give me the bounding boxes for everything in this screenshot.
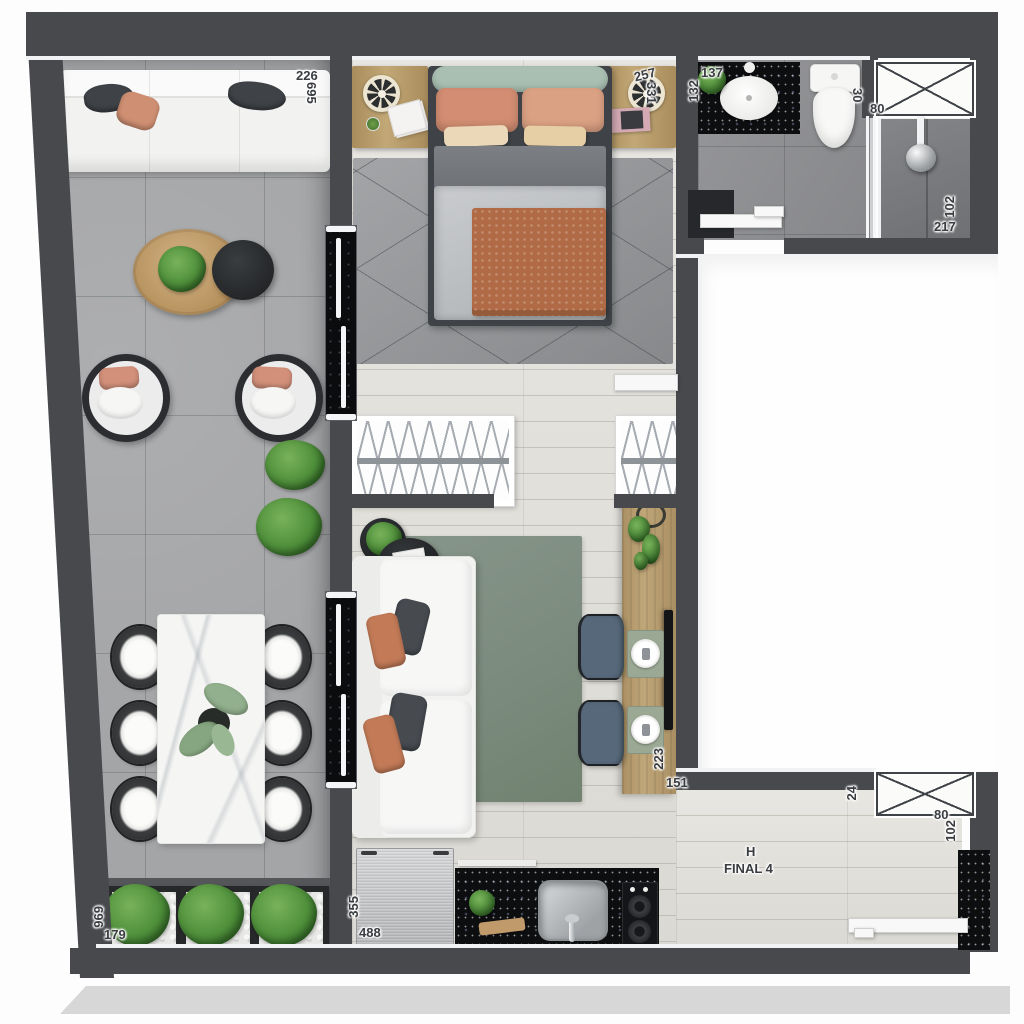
sidewalk-band: [60, 986, 1010, 1014]
nightstand-left: [352, 66, 428, 148]
dim-label: 355: [347, 896, 360, 918]
floor-plan-canvas: 226 695 257 331 137 132 30 80 217 102 22…: [0, 0, 1024, 1024]
door-frame: [326, 782, 356, 788]
terrace-sofa: [60, 70, 330, 172]
cooktop-knob: [630, 887, 635, 892]
armchair-seat: [97, 387, 143, 419]
door-handle: [341, 326, 346, 408]
magazine-pink: [609, 107, 650, 133]
dim-label: 179: [104, 928, 126, 941]
wall-void-left: [676, 258, 698, 772]
sink-drain: [746, 95, 752, 101]
bathroom-door-rail: [754, 206, 784, 217]
dim-label: 80: [870, 102, 884, 115]
toilet-button: [831, 73, 838, 80]
dim-label: 488: [359, 926, 381, 939]
closet-hanger-rail-icon: [352, 416, 514, 506]
bench-leg: [854, 928, 874, 938]
wall-trim: [676, 254, 998, 258]
dim-label: 223: [652, 748, 665, 770]
bed-pillow-cream: [524, 125, 586, 146]
dim-label: 217: [934, 220, 956, 233]
sofa-pillow-dark-right: [227, 80, 287, 113]
wall-bottom: [70, 948, 970, 974]
unit-name: FINAL 4: [724, 862, 773, 875]
faucet-base: [565, 914, 579, 923]
dim-label: 137: [701, 66, 723, 79]
door-handle: [341, 694, 346, 776]
wall-top: [26, 12, 998, 58]
burner-icon: [628, 895, 651, 918]
cooktop-icon: [622, 882, 658, 946]
granite-bench-strip: [958, 850, 990, 950]
wall-trim: [26, 56, 330, 60]
unit-block-letter: H: [746, 845, 755, 858]
terrace-armchair-left: [82, 354, 170, 442]
fridge-handle: [433, 851, 449, 855]
door-handle: [336, 604, 341, 686]
door-handle: [336, 238, 341, 318]
toilet: [810, 64, 858, 152]
dim-label: 102: [943, 196, 956, 218]
dining-table-plant: [180, 686, 250, 776]
wall-right-column: [970, 12, 998, 258]
wall-trim: [676, 768, 876, 772]
window-x-icon: [876, 772, 974, 816]
hall-door-leaf: [614, 374, 678, 391]
plant-dish-icon: [366, 117, 380, 131]
sofa-throw-salmon: [114, 89, 163, 134]
door-frame: [326, 414, 356, 420]
dim-label: 30: [851, 88, 864, 102]
window-x-icon: [876, 62, 974, 116]
toilet-bowl: [813, 88, 855, 148]
kitchen-counter: [455, 868, 659, 948]
terrace-sliding-door-bedroom: [326, 226, 356, 420]
wall-trim: [352, 56, 676, 60]
cooktop-knob: [643, 887, 648, 892]
bed-throw-knit: [472, 208, 606, 316]
dim-label: 132: [687, 80, 700, 102]
dim-label: 24: [845, 786, 858, 800]
cutting-board: [478, 917, 525, 936]
plant-icon: [469, 890, 495, 916]
cutlery-icon: [642, 648, 650, 660]
wall-closet-stub: [614, 494, 676, 508]
counter-chair: [578, 614, 624, 680]
bed-pillow-cream: [444, 125, 509, 147]
bed: [428, 66, 612, 326]
fridge-handle: [361, 851, 377, 855]
dim-label: 969: [92, 906, 105, 928]
armchair-seat: [250, 387, 296, 419]
terrace-side-table: [212, 240, 274, 300]
faucet-icon: [744, 62, 755, 73]
counter-chair: [578, 700, 624, 766]
door-frame: [326, 592, 356, 598]
wall-trim: [698, 56, 870, 60]
dim-label: 226: [296, 69, 318, 82]
terrace-armchair-right: [235, 354, 323, 442]
burner-icon: [628, 920, 651, 943]
hanging-plant-icon: [626, 500, 672, 572]
dim-label: 695: [305, 82, 318, 104]
dim-label: 331: [645, 82, 658, 104]
place-setting: [627, 630, 664, 678]
tv-screen: [664, 610, 673, 730]
dim-label: 102: [944, 820, 957, 842]
cutlery-icon: [642, 724, 650, 736]
kitchen-sink: [538, 880, 608, 941]
terrace-sliding-door-living: [326, 592, 356, 788]
building-void: [698, 258, 998, 772]
kitchen-shelf: [458, 860, 536, 866]
shower-glass-partition: [866, 116, 876, 238]
living-sofa: [352, 556, 476, 838]
wall-closet-stub: [352, 494, 494, 508]
magazine-cover: [621, 110, 644, 129]
door-frame: [326, 226, 356, 232]
wall-trim: [96, 944, 958, 948]
dim-label: 151: [666, 776, 688, 789]
shower-head-icon: [906, 144, 936, 172]
wall-terrace-divider: [330, 12, 352, 954]
plant-vine: [634, 552, 648, 570]
wall-trim: [698, 258, 702, 772]
shower-floor: [878, 116, 976, 244]
